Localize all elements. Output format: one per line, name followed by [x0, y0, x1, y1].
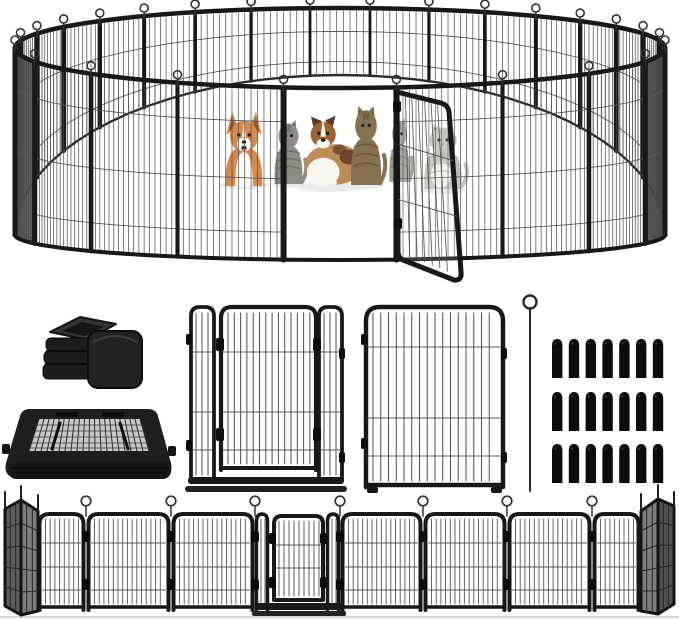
- stake: [653, 392, 663, 431]
- stake: [586, 392, 596, 431]
- flat-fence-panel: [40, 514, 84, 610]
- angled-panels-left: [5, 486, 38, 615]
- pen-back-wall: [15, 8, 665, 235]
- stake: [619, 392, 629, 431]
- rubber-foot-caps: [43, 317, 142, 388]
- ground-anchor-pin: [524, 296, 537, 492]
- gate-panel-figure: [185, 307, 347, 492]
- stake: [569, 444, 579, 483]
- stake: [552, 339, 562, 378]
- stake: [569, 392, 579, 431]
- stake: [619, 444, 629, 483]
- flat-panel-row: [0, 485, 679, 618]
- stake: [569, 339, 579, 378]
- flat-fence-panel: [89, 514, 169, 610]
- stake: [586, 339, 596, 378]
- gray-tabby-cat: [275, 120, 307, 184]
- stake: [636, 339, 646, 378]
- product-image: [0, 0, 679, 621]
- angled-panels-right: [641, 485, 674, 614]
- stake: [653, 339, 663, 378]
- flat-fence-panel: [595, 514, 639, 610]
- circular-playpen: [11, 0, 669, 280]
- plastic-stakes-grid: [552, 339, 663, 483]
- fence-panel-figure: [361, 307, 507, 493]
- stake: [602, 392, 612, 431]
- scene-canvas: [0, 0, 679, 621]
- pen-front-wall: [15, 8, 665, 260]
- flat-row-door-panel: [252, 514, 346, 616]
- stake: [586, 444, 596, 483]
- stake: [636, 392, 646, 431]
- stake: [552, 392, 562, 431]
- stake: [602, 339, 612, 378]
- stake: [619, 339, 629, 378]
- stake: [653, 444, 663, 483]
- flat-fence-panel: [426, 514, 505, 610]
- pen-gate-door-open: [393, 92, 461, 280]
- stake: [552, 444, 562, 483]
- corgi-dog: [226, 112, 263, 188]
- stake: [636, 444, 646, 483]
- accessories: [2, 296, 663, 494]
- brown-tabby-cat: [351, 106, 385, 185]
- flat-fence-panel: [174, 514, 253, 610]
- flat-fence-panel: [343, 514, 421, 610]
- folded-panel-stack: [2, 409, 176, 479]
- flat-fence-panel: [510, 514, 590, 610]
- stake: [602, 444, 612, 483]
